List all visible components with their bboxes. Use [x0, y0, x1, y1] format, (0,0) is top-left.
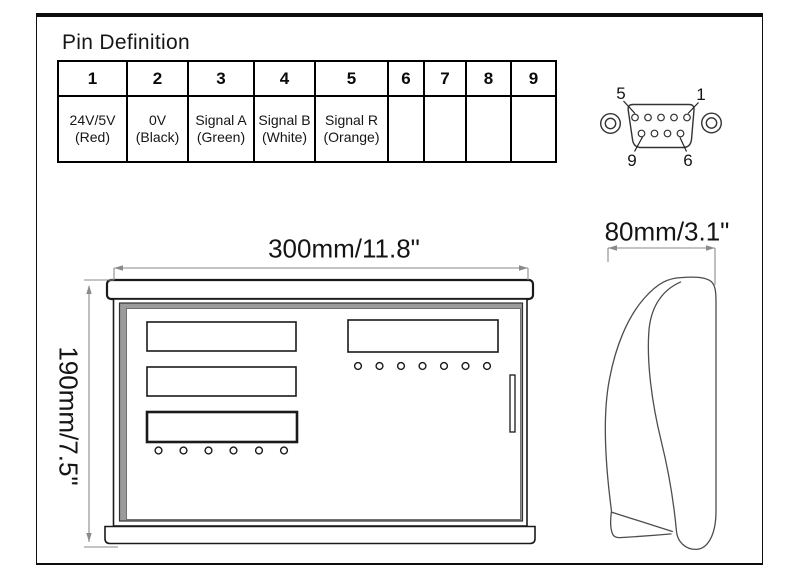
screw-hole-left-inner — [605, 118, 615, 128]
display-window-1 — [147, 322, 296, 351]
display-window-right — [348, 320, 498, 352]
db9-label-pin6: 6 — [683, 151, 692, 170]
button-dot — [484, 363, 491, 370]
db9-label-pin1: 1 — [696, 85, 705, 104]
front-view-drawing — [105, 280, 535, 544]
side-profile-base-diagonal — [612, 512, 673, 531]
front-width-dimension-label: 300mm/11.8" — [268, 234, 420, 265]
db9-shell — [628, 105, 694, 148]
line-art-layer: 5 1 9 6 — [0, 0, 800, 573]
device-bottom-cap — [105, 527, 535, 544]
switch-slot — [510, 375, 515, 432]
button-dot — [376, 363, 383, 370]
button-dot — [462, 363, 469, 370]
side-view-drawing — [605, 277, 716, 549]
button-dot — [155, 447, 162, 454]
button-dot — [419, 363, 426, 370]
side-view-dimensions — [608, 245, 715, 285]
display-window-3 — [147, 412, 297, 442]
dim-arrow-down — [86, 533, 91, 542]
db9-connector-diagram: 5 1 9 6 — [601, 84, 722, 170]
display-window-2 — [147, 367, 296, 396]
device-top-cap — [107, 280, 533, 299]
side-profile-front-curve — [605, 278, 681, 511]
button-dot — [256, 447, 263, 454]
button-dot — [205, 447, 212, 454]
side-profile-back-outline — [677, 277, 716, 549]
button-dot — [230, 447, 237, 454]
front-height-dimension-label: 190mm/7.5" — [53, 346, 84, 485]
side-width-dimension-label: 80mm/3.1" — [605, 217, 730, 248]
side-profile-inner-curve — [648, 282, 681, 533]
dim-arrow-left — [114, 265, 123, 270]
button-dot — [398, 363, 405, 370]
db9-label-pin5: 5 — [616, 84, 625, 103]
button-dot — [180, 447, 187, 454]
dim-arrow-up — [86, 285, 91, 294]
diagram-canvas: Pin Definition 1 2 3 4 5 6 7 8 9 24V/5V … — [0, 0, 800, 573]
dim-arrow-right — [519, 265, 528, 270]
screw-hole-left-outer — [601, 114, 621, 134]
screw-hole-right-inner — [706, 118, 716, 128]
button-dot — [281, 447, 288, 454]
screw-hole-right-outer — [702, 113, 722, 133]
button-dot — [441, 363, 448, 370]
db9-label-pin9: 9 — [627, 151, 636, 170]
button-dot — [355, 363, 362, 370]
